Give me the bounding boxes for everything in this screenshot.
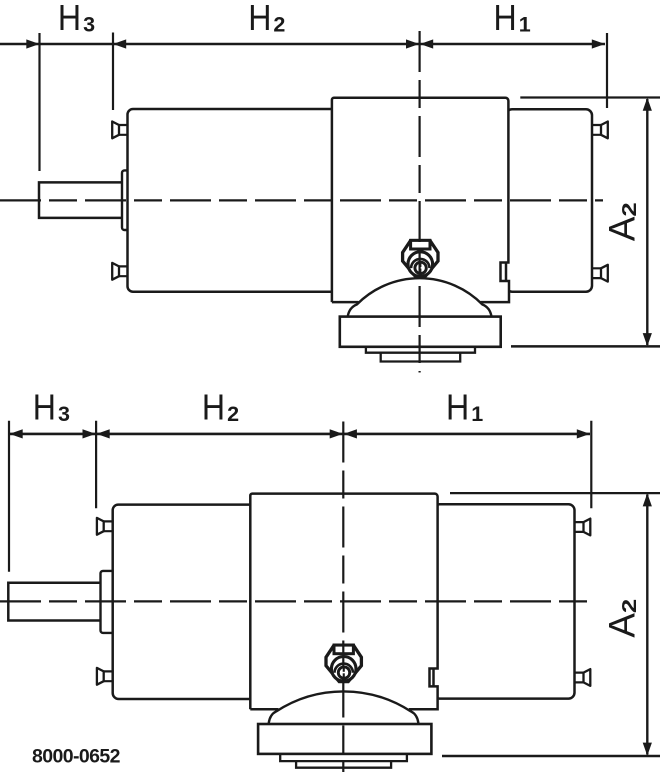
svg-text:2: 2 xyxy=(227,402,239,426)
svg-text:A: A xyxy=(601,613,642,638)
svg-text:H: H xyxy=(58,0,81,39)
svg-text:8000-0652: 8000-0652 xyxy=(32,746,121,768)
svg-text:2: 2 xyxy=(273,13,285,37)
svg-text:3: 3 xyxy=(83,13,95,37)
svg-text:2: 2 xyxy=(618,202,641,216)
svg-text:1: 1 xyxy=(471,402,483,426)
svg-text:H: H xyxy=(446,388,469,428)
svg-text:H: H xyxy=(494,0,517,39)
svg-text:H: H xyxy=(202,388,225,428)
svg-text:H: H xyxy=(248,0,271,39)
svg-text:H: H xyxy=(33,388,56,428)
svg-text:1: 1 xyxy=(519,13,531,37)
svg-text:2: 2 xyxy=(618,599,641,613)
svg-text:A: A xyxy=(601,216,642,241)
svg-text:3: 3 xyxy=(58,402,70,426)
